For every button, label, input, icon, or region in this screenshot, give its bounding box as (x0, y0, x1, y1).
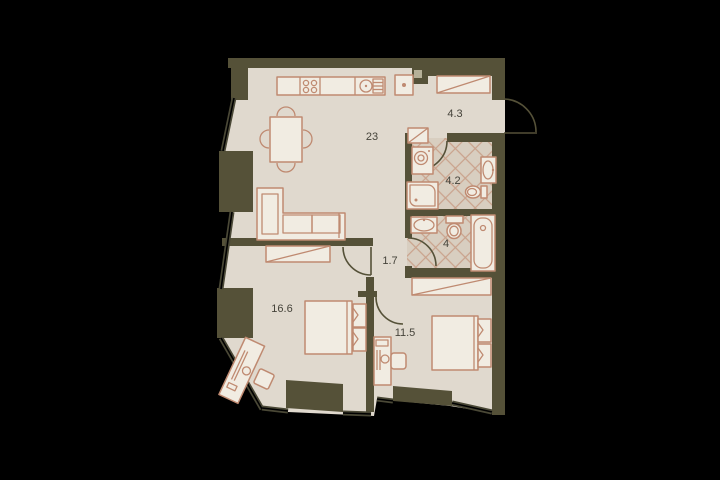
wall-pier-c (217, 288, 253, 338)
bedroom-left-wardrobe (266, 246, 330, 262)
shaft-notch (414, 70, 422, 78)
pillow (353, 328, 366, 351)
bathroom-sink-icon (481, 157, 496, 183)
room-label-wc: 4 (443, 238, 449, 250)
bed-icon (305, 301, 366, 354)
entry-door-arc (503, 99, 537, 133)
room-label-bedroom-right: 11.5 (395, 327, 416, 339)
wall-bathroom-top-right (447, 133, 505, 142)
desk-icon (374, 337, 391, 385)
room-label-hallway: 4.3 (447, 108, 462, 120)
wall-corridor-stub (358, 291, 377, 297)
bathtub-icon (471, 215, 495, 271)
shower-icon (407, 182, 438, 209)
window-4 (262, 408, 288, 411)
wall-pier-d (286, 380, 343, 412)
room-label-corridor: 1.7 (382, 255, 397, 267)
pillow (478, 344, 491, 367)
wall-pier-b (219, 151, 253, 212)
room-label-bedroom-left: 16.6 (271, 303, 292, 315)
floor-plan: 23 4.3 4.2 4 1.7 16.6 11.5 (0, 0, 720, 480)
wall-right-upper (492, 58, 505, 100)
kitchen-end-cabinet (395, 75, 413, 95)
window-5 (343, 413, 371, 414)
wall-bedroom-divider (366, 277, 374, 412)
hallway-wardrobe (437, 76, 490, 93)
desk-chair-icon (391, 353, 406, 369)
floor-plan-canvas: 23 4.3 4.2 4 1.7 16.6 11.5 (0, 0, 720, 480)
wc-toilet-icon (446, 216, 463, 239)
toilet-icon (466, 186, 488, 198)
wc-sink-icon (411, 217, 437, 233)
wall-pier-a (231, 58, 248, 100)
washing-machine-icon (412, 147, 433, 174)
pillow (478, 319, 491, 342)
window-6 (377, 399, 393, 401)
room-label-bathroom: 4.2 (445, 175, 460, 187)
pillow (353, 304, 366, 327)
bedroom-right-wardrobe (412, 278, 491, 295)
room-label-kitchen-living: 23 (366, 131, 378, 143)
wall-top (228, 58, 435, 68)
hallway-cabinet (408, 128, 428, 143)
